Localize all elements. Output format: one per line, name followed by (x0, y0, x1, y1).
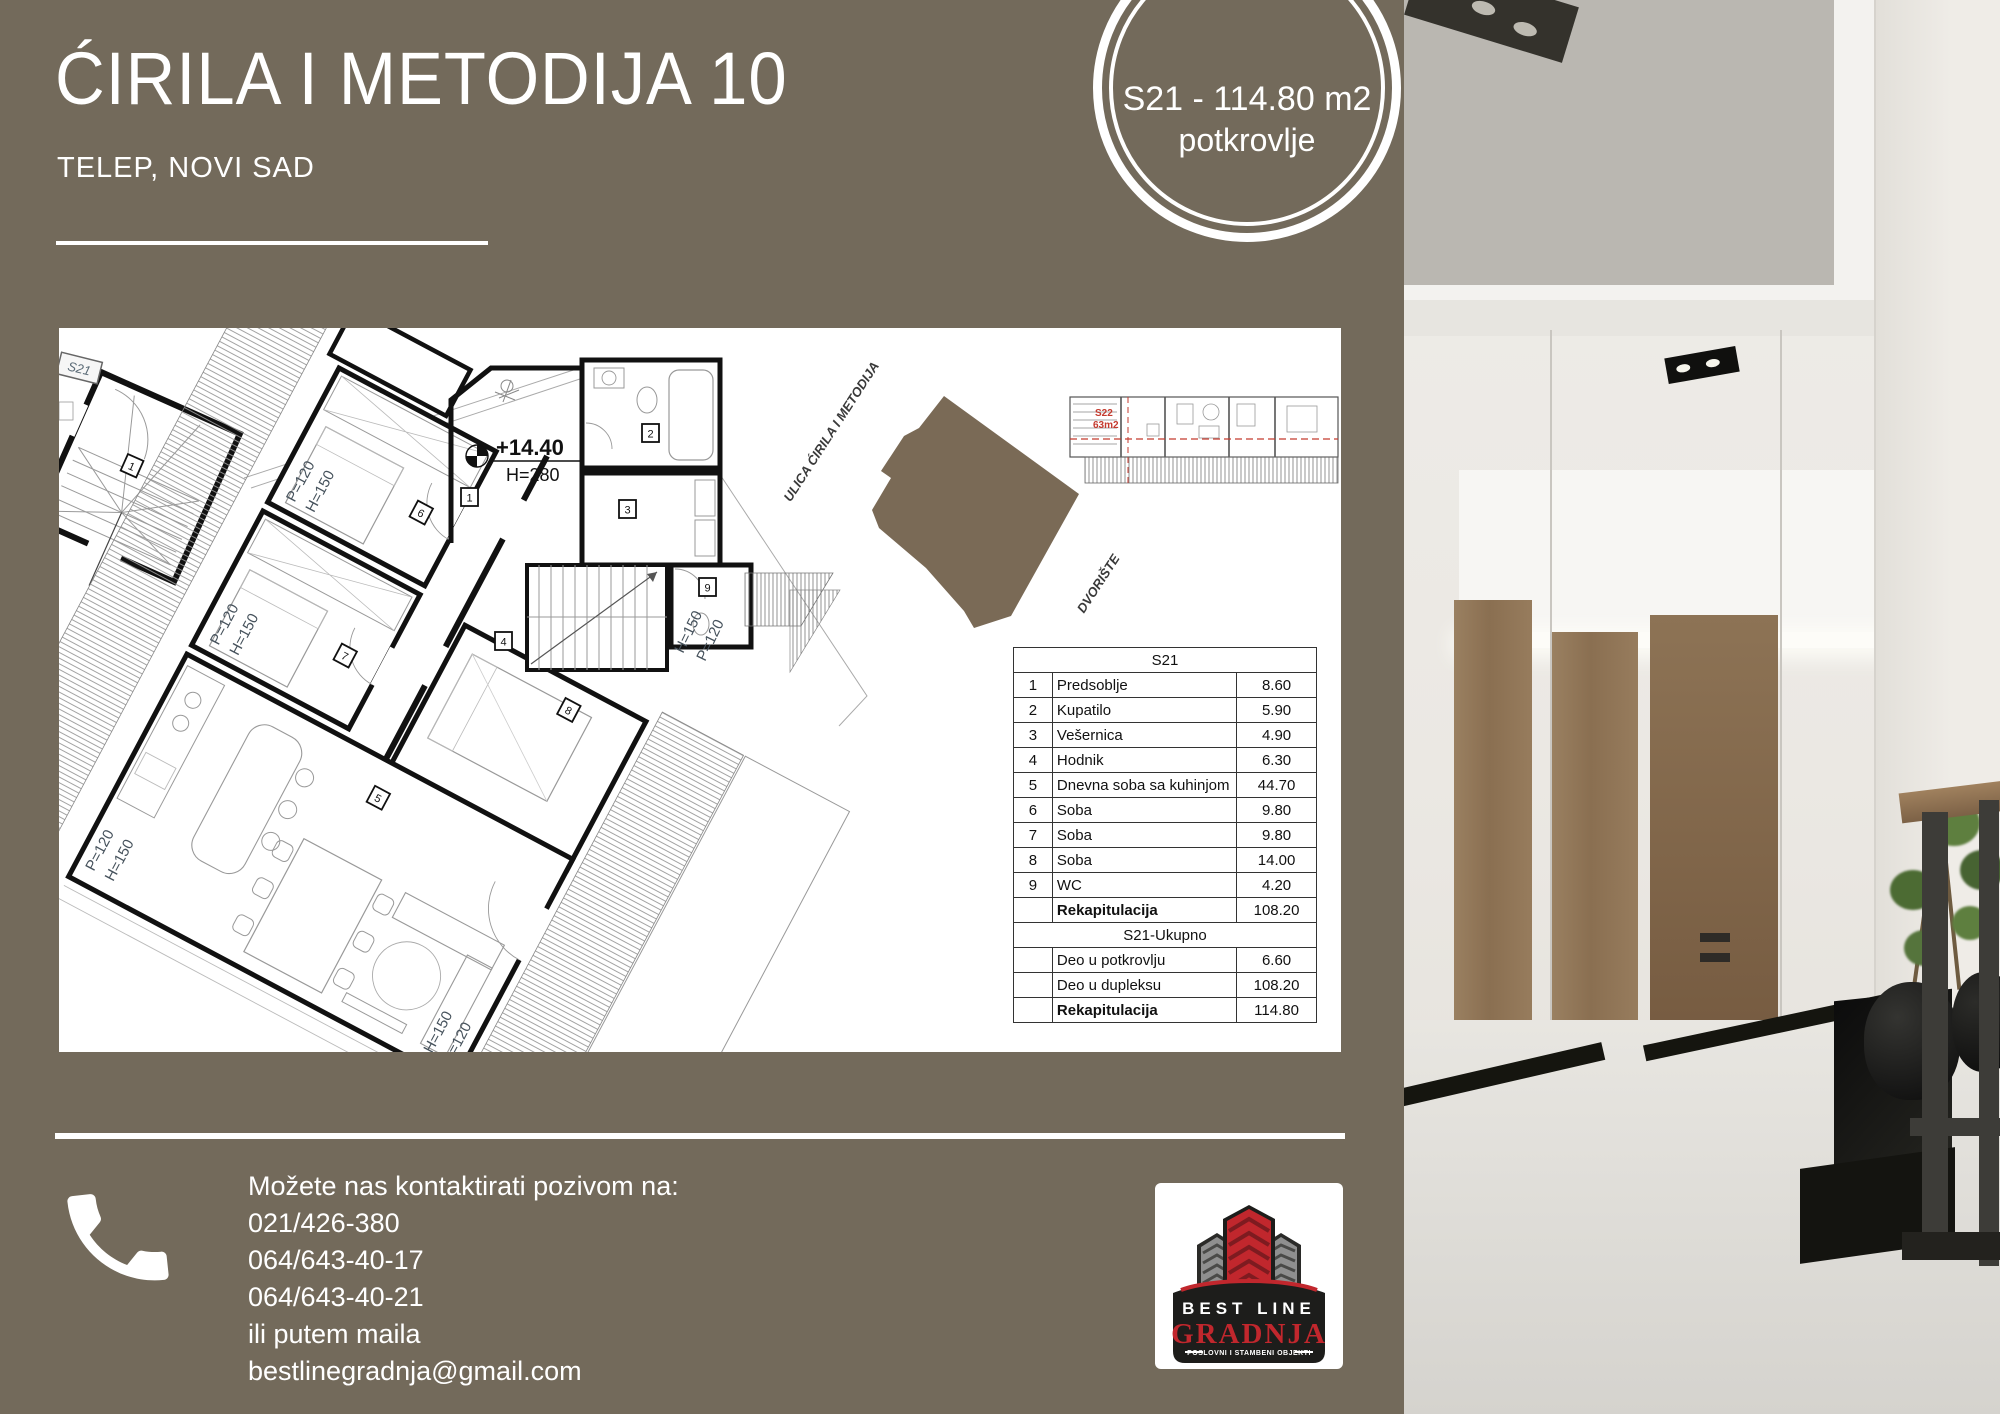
floor-height-value: H=280 (506, 465, 560, 485)
table-section-row: S21-Ukupno (1014, 923, 1317, 948)
table-total-row: Rekapitulacija114.80 (1014, 998, 1317, 1023)
title-underline (56, 241, 488, 245)
mirror-seam (1780, 330, 1782, 1100)
railing-base (1902, 1232, 2000, 1260)
site-footprint (872, 396, 1079, 628)
contact-block: Možete nas kontaktirati pozivom na: 021/… (248, 1168, 679, 1390)
footer-divider (55, 1133, 1345, 1139)
logo-text-top: BEST LINE (1182, 1299, 1316, 1318)
street-label: ULICA ĆIRILA I METODIJA (780, 359, 882, 504)
table-row: 4Hodnik6.30 (1014, 748, 1317, 773)
unit-badge: S21 - 114.80 m2 potkrovlje (1093, 0, 1401, 242)
badge-ring (1109, 0, 1385, 226)
flyer-page: ĆIRILA I METODIJA 10 TELEP, NOVI SAD S21… (0, 0, 2000, 1414)
contact-phone: 064/643-40-21 (248, 1279, 679, 1316)
table-row: 5Dnevna soba sa kuhinjom44.70 (1014, 773, 1317, 798)
table-subtotal-row: Rekapitulacija108.20 (1014, 898, 1317, 923)
contact-phone: 021/426-380 (248, 1205, 679, 1242)
contact-email: bestlinegradnja@gmail.com (248, 1353, 679, 1390)
svg-text:2: 2 (647, 429, 653, 441)
table-row: 7Soba9.80 (1014, 823, 1317, 848)
photo-corner-overlay (1404, 0, 1834, 285)
table-row: Deo u dupleksu108.20 (1014, 973, 1317, 998)
table-row: 6Soba9.80 (1014, 798, 1317, 823)
company-logo: BEST LINE GRADNJA POSLOVNI I STAMBENI OB… (1155, 1183, 1343, 1369)
room-number-box: 2 (642, 424, 659, 442)
page-title: ĆIRILA I METODIJA 10 (55, 36, 788, 121)
yard-label: DVORIŠTE (1074, 551, 1123, 615)
site-stair-hatch (790, 590, 840, 672)
room-number-box: 4 (495, 632, 512, 650)
room-2-bath: 2 (582, 360, 720, 468)
strip-area-label: 63m2 (1093, 420, 1119, 431)
table-row: 3Vešernica4.90 (1014, 723, 1317, 748)
svg-text:3: 3 (624, 505, 630, 517)
stairwell (527, 565, 667, 670)
best-line-gradnja-logo: BEST LINE GRADNJA POSLOVNI I STAMBENI OB… (1155, 1183, 1343, 1369)
strip-terrace-hatch (1085, 457, 1338, 483)
wood-panel (1454, 600, 1532, 1030)
table-row: 9WC4.20 (1014, 873, 1317, 898)
svg-text:4: 4 (500, 637, 506, 649)
table-row: Deo u potkrovlju6.60 (1014, 948, 1317, 973)
svg-text:1: 1 (466, 493, 472, 505)
interior-photo (1404, 0, 2000, 1414)
contact-mail-note: ili putem maila (248, 1316, 679, 1353)
floorplan-panel: S21 1 (59, 328, 1341, 1052)
table-row: 8Soba14.00 (1014, 848, 1317, 873)
table-header-row: S21 (1014, 648, 1317, 673)
strip-unit-label: S22 (1095, 408, 1113, 419)
logo-banner: BEST LINE GRADNJA POSLOVNI I STAMBENI OB… (1171, 1281, 1327, 1363)
room-number-box: 1 (461, 488, 478, 506)
phone-icon (50, 1170, 186, 1306)
person-figure (495, 380, 519, 402)
room-3-laundry: 3 (582, 473, 720, 565)
table-row: 2Kupatilo5.90 (1014, 698, 1317, 723)
mirror-seam (1550, 330, 1552, 1100)
elevation-value: +14.40 (496, 435, 564, 460)
room-number-box: 1 (121, 454, 144, 477)
room-number-box: 9 (699, 578, 716, 596)
ceiling-light-icon (1664, 346, 1739, 384)
logo-tagline: POSLOVNI I STAMBENI OBJEKTI (1187, 1350, 1311, 1357)
unit-tag: S21 (59, 352, 102, 384)
page-subtitle: TELEP, NOVI SAD (57, 152, 315, 185)
room-number-box: 3 (619, 500, 636, 518)
railing-post (1922, 812, 1948, 1242)
contact-intro: Možete nas kontaktirati pozivom na: (248, 1168, 679, 1205)
area-table: S21 1Predsoblje8.60 2Kupatilo5.90 3Vešer… (1013, 647, 1317, 1023)
logo-text-main: GRADNJA (1171, 1318, 1327, 1350)
svg-text:9: 9 (704, 583, 710, 595)
contact-phone: 064/643-40-17 (248, 1242, 679, 1279)
upper-wing: +14.40 H=280 1 (451, 360, 833, 670)
railing-post (1979, 800, 1999, 1266)
railing-bar (1910, 1118, 2000, 1136)
table-row: 1Predsoblje8.60 (1014, 673, 1317, 698)
